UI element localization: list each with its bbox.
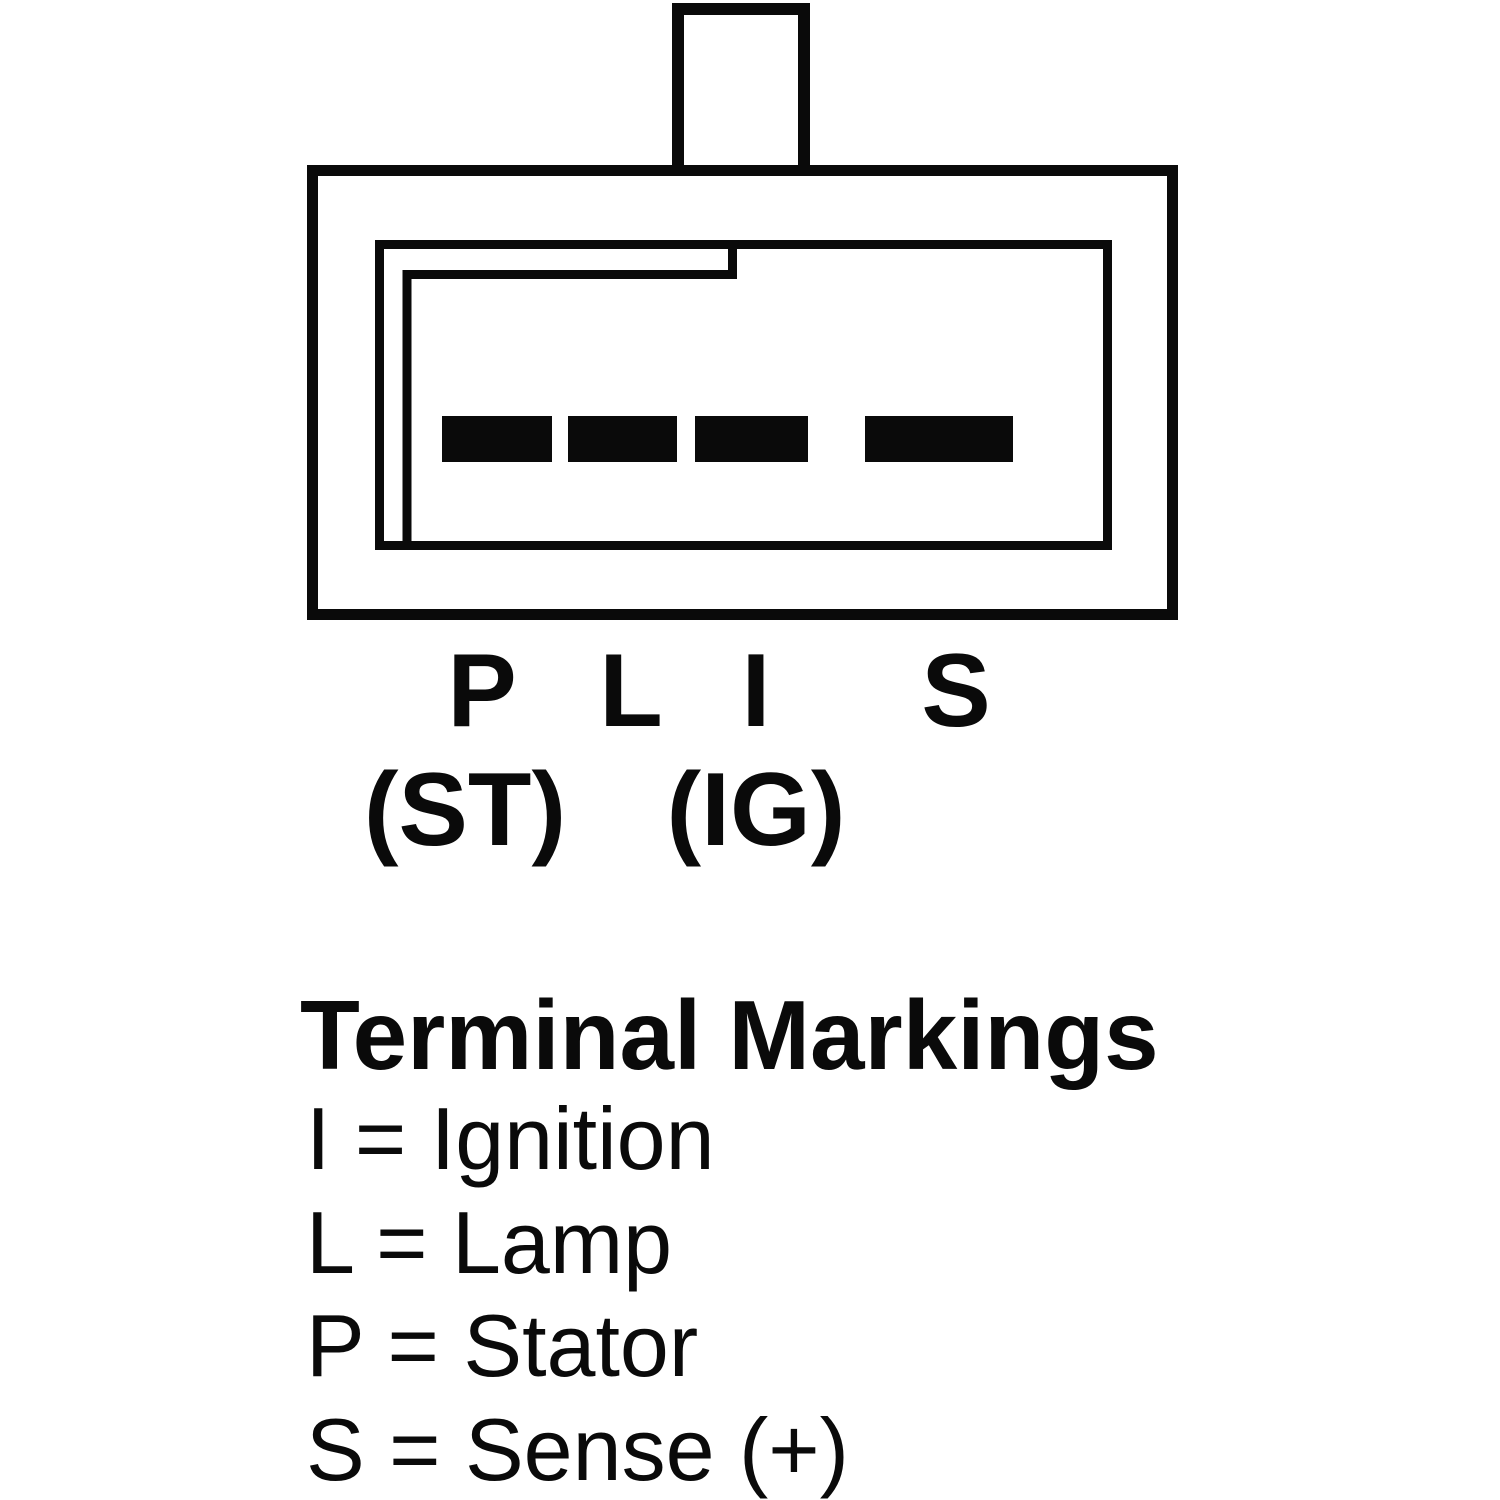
legend-title: Terminal Markings (300, 981, 1159, 1090)
pin-label-l: L (599, 633, 663, 749)
diagram-canvas: P L I S (ST) (IG) Terminal Markings I = … (0, 0, 1500, 1500)
terminal-slot-s (865, 416, 1013, 462)
connector-key-notch (407, 245, 733, 551)
terminal-slots (442, 416, 1013, 462)
pin-sublabel-ig: (IG) (666, 752, 845, 868)
legend-item-stator: P = Stator (306, 1297, 698, 1395)
pin-sublabel-st: (ST) (364, 752, 566, 868)
pin-label-s: S (921, 633, 990, 749)
connector-inner-wall (380, 245, 1108, 546)
terminal-slot-i (695, 416, 808, 462)
pin-label-i: I (742, 633, 771, 749)
pin-label-p: P (447, 633, 516, 749)
connector-tab (678, 9, 804, 176)
legend-item-ignition: I = Ignition (306, 1090, 715, 1188)
terminal-slot-p (442, 416, 552, 462)
legend-item-sense: S = Sense (+) (306, 1401, 849, 1499)
legend-item-lamp: L = Lamp (306, 1194, 672, 1292)
terminal-slot-l (568, 416, 677, 462)
